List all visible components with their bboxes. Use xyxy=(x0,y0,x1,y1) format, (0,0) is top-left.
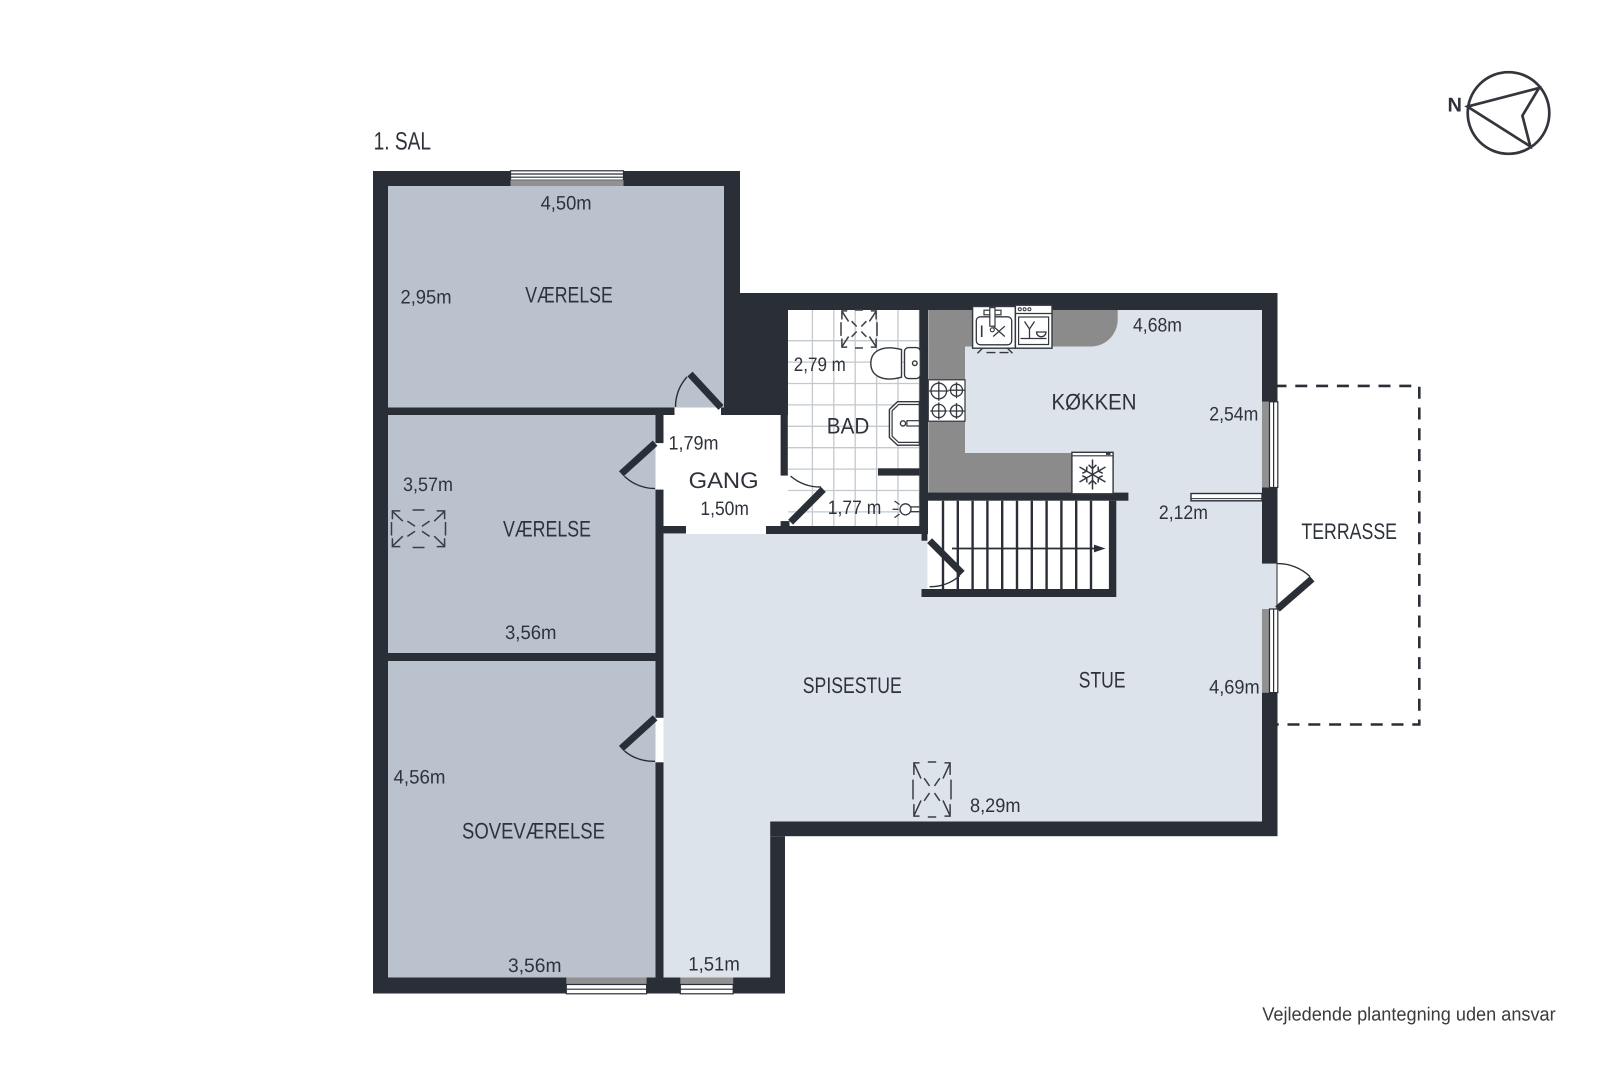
svg-text:1. SAL: 1. SAL xyxy=(374,128,432,156)
svg-text:TERRASSE: TERRASSE xyxy=(1301,519,1397,544)
svg-text:2,95m: 2,95m xyxy=(401,287,452,309)
svg-text:1,77 m: 1,77 m xyxy=(828,497,882,519)
svg-text:1,51m: 1,51m xyxy=(688,954,740,976)
svg-text:VÆRELSE: VÆRELSE xyxy=(525,283,613,308)
svg-text:3,56m: 3,56m xyxy=(508,955,562,977)
svg-text:SPISESTUE: SPISESTUE xyxy=(803,673,902,698)
svg-text:4,69m: 4,69m xyxy=(1209,677,1260,699)
svg-text:8,29m: 8,29m xyxy=(970,795,1021,817)
svg-text:4,68m: 4,68m xyxy=(1133,315,1182,337)
svg-text:BAD: BAD xyxy=(827,414,870,439)
svg-text:STUE: STUE xyxy=(1079,668,1126,693)
svg-text:2,54m: 2,54m xyxy=(1209,404,1258,426)
svg-text:KØKKEN: KØKKEN xyxy=(1052,390,1137,415)
svg-text:1,79m: 1,79m xyxy=(669,433,719,455)
svg-text:4,56m: 4,56m xyxy=(394,767,446,789)
svg-text:1,50m: 1,50m xyxy=(700,498,749,520)
svg-text:SOVEVÆRELSE: SOVEVÆRELSE xyxy=(462,819,605,844)
svg-text:VÆRELSE: VÆRELSE xyxy=(503,517,591,542)
svg-text:2,12m: 2,12m xyxy=(1159,502,1208,524)
svg-text:N: N xyxy=(1448,95,1462,117)
svg-text:3,57m: 3,57m xyxy=(403,474,453,496)
svg-text:4,50m: 4,50m xyxy=(541,192,592,214)
svg-text:Vejledende plantegning uden an: Vejledende plantegning uden ansvar xyxy=(1262,1005,1556,1026)
svg-text:3,56m: 3,56m xyxy=(505,622,557,644)
svg-text:2,79 m: 2,79 m xyxy=(794,354,846,376)
svg-text:GANG: GANG xyxy=(689,468,759,493)
